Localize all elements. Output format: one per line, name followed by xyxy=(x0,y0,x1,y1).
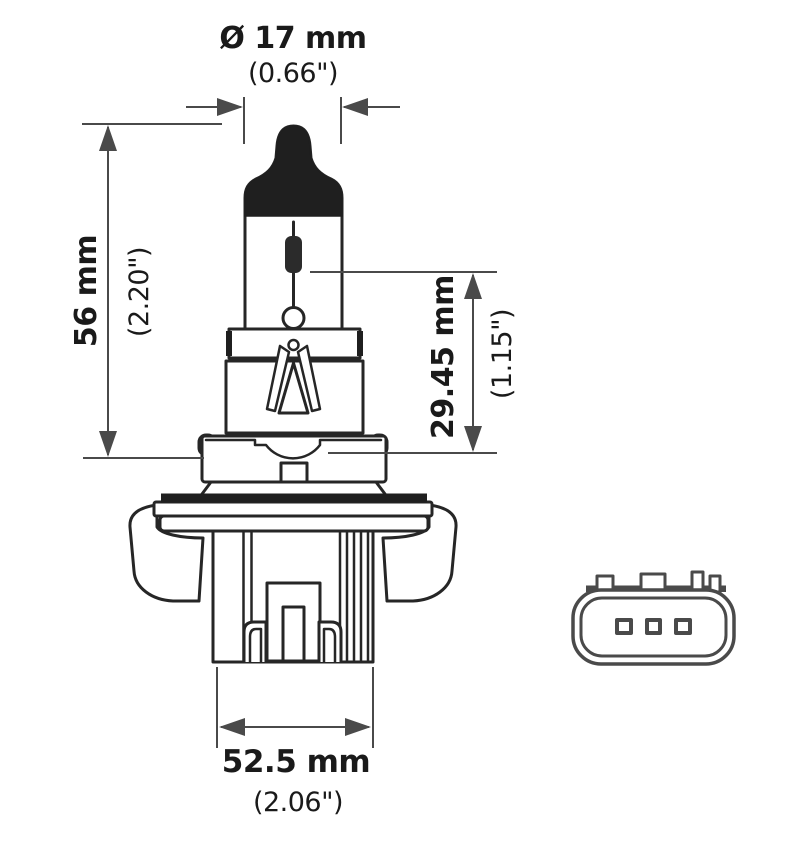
label-diameter-in: (0.66") xyxy=(248,58,338,89)
housing-center-slot-inner xyxy=(283,607,304,661)
support-pivot-hole xyxy=(289,340,299,350)
bulb-dimension-diagram: Ø 17 mm (0.66") 56 mm (2.20") 29.45 mm (… xyxy=(0,0,800,843)
flange xyxy=(154,502,432,516)
connector-pin-3 xyxy=(676,620,690,633)
connector-pin-1 xyxy=(617,620,631,633)
base-tier-1-right-contact xyxy=(357,331,363,356)
label-diameter-mm: Ø 17 mm xyxy=(219,21,366,56)
connector-face-view xyxy=(573,572,734,664)
glass-bead xyxy=(283,308,304,329)
label-width-mm: 52.5 mm xyxy=(222,744,370,780)
diagram-canvas: Ø 17 mm (0.66") 56 mm (2.20") 29.45 mm (… xyxy=(0,0,800,843)
label-length-mm: 56 mm xyxy=(69,235,104,347)
filament-coil xyxy=(285,236,302,273)
connector-pin-2 xyxy=(647,620,660,633)
label-width-in: (2.06") xyxy=(253,787,343,818)
flange-gasket-band xyxy=(161,494,427,503)
housing-slot-right-inner xyxy=(324,629,335,662)
bulb-side-view xyxy=(130,126,456,662)
bulb-black-cap xyxy=(245,126,342,216)
label-length-in: (2.20") xyxy=(124,247,155,337)
label-lcl-in: (1.15") xyxy=(487,309,518,399)
collar-key xyxy=(281,463,307,482)
base-tier-1-left-contact xyxy=(226,331,232,356)
flange-lower-bar xyxy=(160,516,428,531)
label-lcl-mm: 29.45 mm xyxy=(426,275,461,439)
housing-slot-left-inner xyxy=(250,629,261,662)
